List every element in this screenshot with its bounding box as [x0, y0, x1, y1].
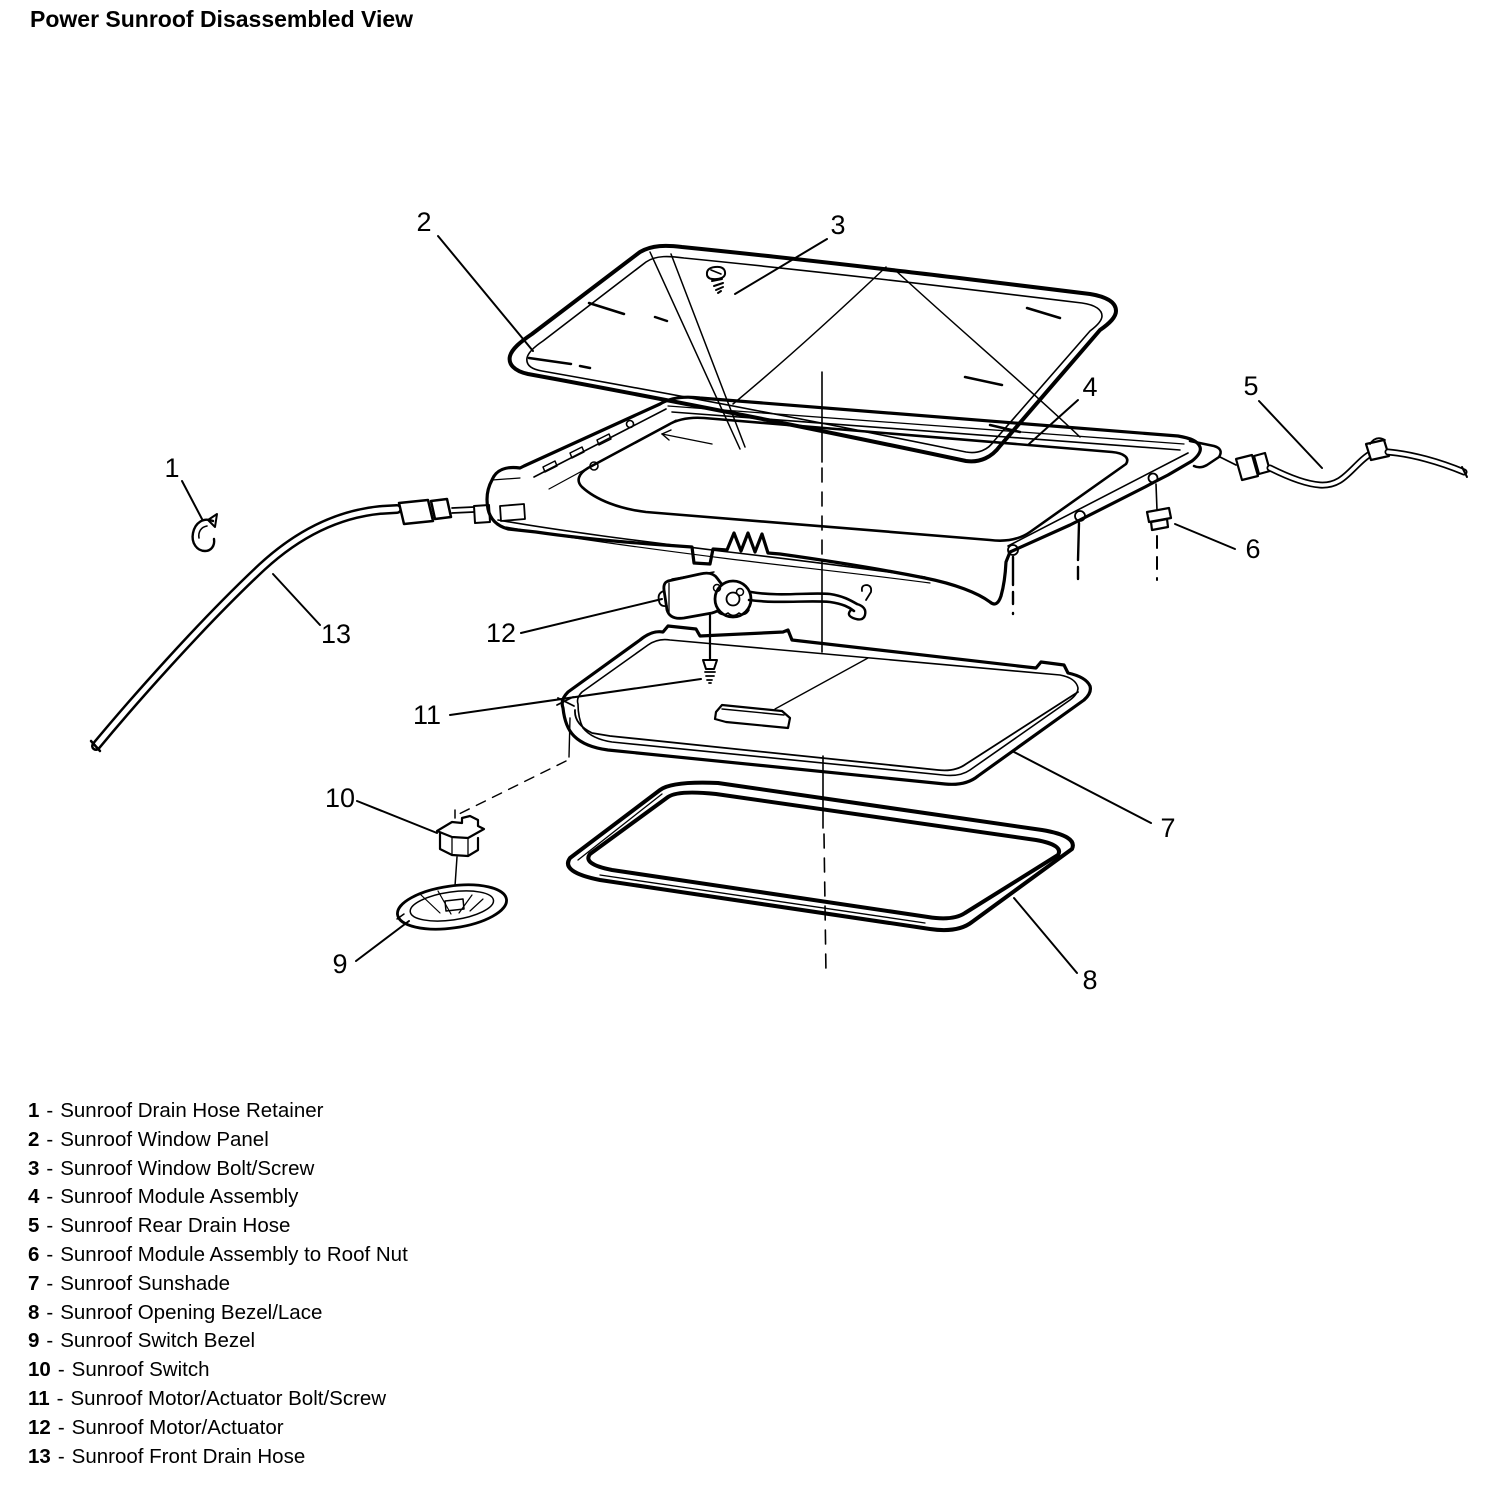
legend-item-3: 3-Sunroof Window Bolt/Screw	[28, 1155, 408, 1184]
callout-5-number: 5	[1243, 371, 1258, 401]
legend-item-5-sep: -	[46, 1212, 53, 1241]
legend-item-9-sep: -	[46, 1327, 53, 1356]
exploded-view-diagram: 1 2 3 4 5 6 7	[0, 0, 1504, 1080]
module-assembly-frame	[474, 397, 1236, 614]
callout-10-number: 10	[325, 783, 355, 813]
callout-9: 9	[332, 921, 409, 979]
callout-6: 6	[1175, 524, 1261, 564]
motor-bolt-screw	[703, 615, 717, 683]
legend-item-6-label: Sunroof Module Assembly to Roof Nut	[60, 1243, 408, 1266]
legend-item-12: 12-Sunroof Motor/Actuator	[28, 1414, 408, 1443]
legend-item-1: 1-Sunroof Drain Hose Retainer	[28, 1097, 408, 1126]
legend-item-9-label: Sunroof Switch Bezel	[60, 1329, 255, 1352]
legend-item-7-label: Sunroof Sunshade	[60, 1272, 230, 1295]
legend-item-1-number: 1	[28, 1099, 39, 1122]
manual-page: Power Sunroof Disassembled View	[0, 0, 1504, 1486]
legend-item-6: 6-Sunroof Module Assembly to Roof Nut	[28, 1241, 408, 1270]
callout-13-number: 13	[321, 619, 351, 649]
legend-item-13-label: Sunroof Front Drain Hose	[72, 1445, 306, 1468]
legend-item-13-number: 13	[28, 1445, 51, 1468]
legend-item-12-number: 12	[28, 1416, 51, 1439]
legend-item-10: 10-Sunroof Switch	[28, 1356, 408, 1385]
legend-item-2-sep: -	[46, 1126, 53, 1155]
callout-12-number: 12	[486, 618, 516, 648]
legend-item-2-label: Sunroof Window Panel	[60, 1128, 269, 1151]
legend-item-7-sep: -	[46, 1270, 53, 1299]
window-panel	[510, 246, 1116, 462]
legend-item-12-label: Sunroof Motor/Actuator	[72, 1416, 284, 1439]
legend-item-4-number: 4	[28, 1185, 39, 1208]
callout-4-number: 4	[1082, 372, 1097, 402]
callout-2-number: 2	[416, 207, 431, 237]
sunroof-switch	[437, 810, 484, 886]
legend-item-2: 2-Sunroof Window Panel	[28, 1126, 408, 1155]
callout-13: 13	[273, 574, 351, 649]
legend-item-8-number: 8	[28, 1301, 39, 1324]
callout-3-number: 3	[830, 210, 845, 240]
legend-item-11-number: 11	[28, 1387, 50, 1410]
legend-item-10-label: Sunroof Switch	[72, 1358, 210, 1381]
legend-item-4: 4-Sunroof Module Assembly	[28, 1183, 408, 1212]
legend-item-11-sep: -	[57, 1385, 64, 1414]
callout-11-number: 11	[413, 700, 441, 730]
legend-item-6-sep: -	[46, 1241, 53, 1270]
legend-item-3-number: 3	[28, 1157, 39, 1180]
motor-actuator	[659, 572, 872, 619]
legend-item-3-label: Sunroof Window Bolt/Screw	[60, 1157, 314, 1180]
legend-item-2-number: 2	[28, 1128, 39, 1151]
legend-item-1-sep: -	[46, 1097, 53, 1126]
legend-item-10-sep: -	[58, 1356, 65, 1385]
legend-item-10-number: 10	[28, 1358, 51, 1381]
legend-item-4-sep: -	[46, 1183, 53, 1212]
legend-item-13: 13-Sunroof Front Drain Hose	[28, 1443, 408, 1472]
callout-9-number: 9	[332, 949, 347, 979]
legend-item-8: 8-Sunroof Opening Bezel/Lace	[28, 1299, 408, 1328]
legend-item-7: 7-Sunroof Sunshade	[28, 1270, 408, 1299]
callout-5: 5	[1243, 371, 1322, 468]
legend-item-8-sep: -	[46, 1299, 53, 1328]
legend-item-13-sep: -	[58, 1443, 65, 1472]
callout-10: 10	[325, 783, 437, 833]
opening-bezel-lace	[568, 783, 1073, 930]
callout-8-number: 8	[1082, 965, 1097, 995]
legend-item-11-label: Sunroof Motor/Actuator Bolt/Screw	[71, 1387, 387, 1410]
drain-hose-retainer-clip	[193, 514, 217, 551]
callout-2: 2	[416, 207, 533, 351]
legend-item-5-number: 5	[28, 1214, 39, 1237]
legend-item-4-label: Sunroof Module Assembly	[60, 1185, 298, 1208]
callout-8: 8	[1014, 898, 1098, 995]
callout-1-number: 1	[164, 453, 179, 483]
window-bolt-screw	[707, 267, 725, 293]
legend-item-3-sep: -	[46, 1155, 53, 1184]
legend-item-9: 9-Sunroof Switch Bezel	[28, 1327, 408, 1356]
legend-item-9-number: 9	[28, 1329, 39, 1352]
legend-item-5-label: Sunroof Rear Drain Hose	[60, 1214, 290, 1237]
switch-bezel	[395, 879, 510, 936]
rear-drain-hose	[1236, 438, 1467, 485]
legend-item-11: 11-Sunroof Motor/Actuator Bolt/Screw	[28, 1385, 408, 1414]
module-roof-nut	[1147, 484, 1171, 580]
legend-item-7-number: 7	[28, 1272, 39, 1295]
callout-3: 3	[735, 210, 846, 294]
legend-item-1-label: Sunroof Drain Hose Retainer	[60, 1099, 323, 1122]
callout-6-number: 6	[1245, 534, 1260, 564]
legend-item-12-sep: -	[58, 1414, 65, 1443]
legend-item-8-label: Sunroof Opening Bezel/Lace	[60, 1301, 322, 1324]
sunshade	[459, 626, 1090, 814]
legend-item-6-number: 6	[28, 1243, 39, 1266]
callout-12: 12	[486, 599, 662, 648]
callout-1: 1	[164, 453, 202, 519]
parts-legend: 1-Sunroof Drain Hose Retainer 2-Sunroof …	[28, 1097, 408, 1471]
legend-item-5: 5-Sunroof Rear Drain Hose	[28, 1212, 408, 1241]
callout-7-number: 7	[1160, 813, 1175, 843]
